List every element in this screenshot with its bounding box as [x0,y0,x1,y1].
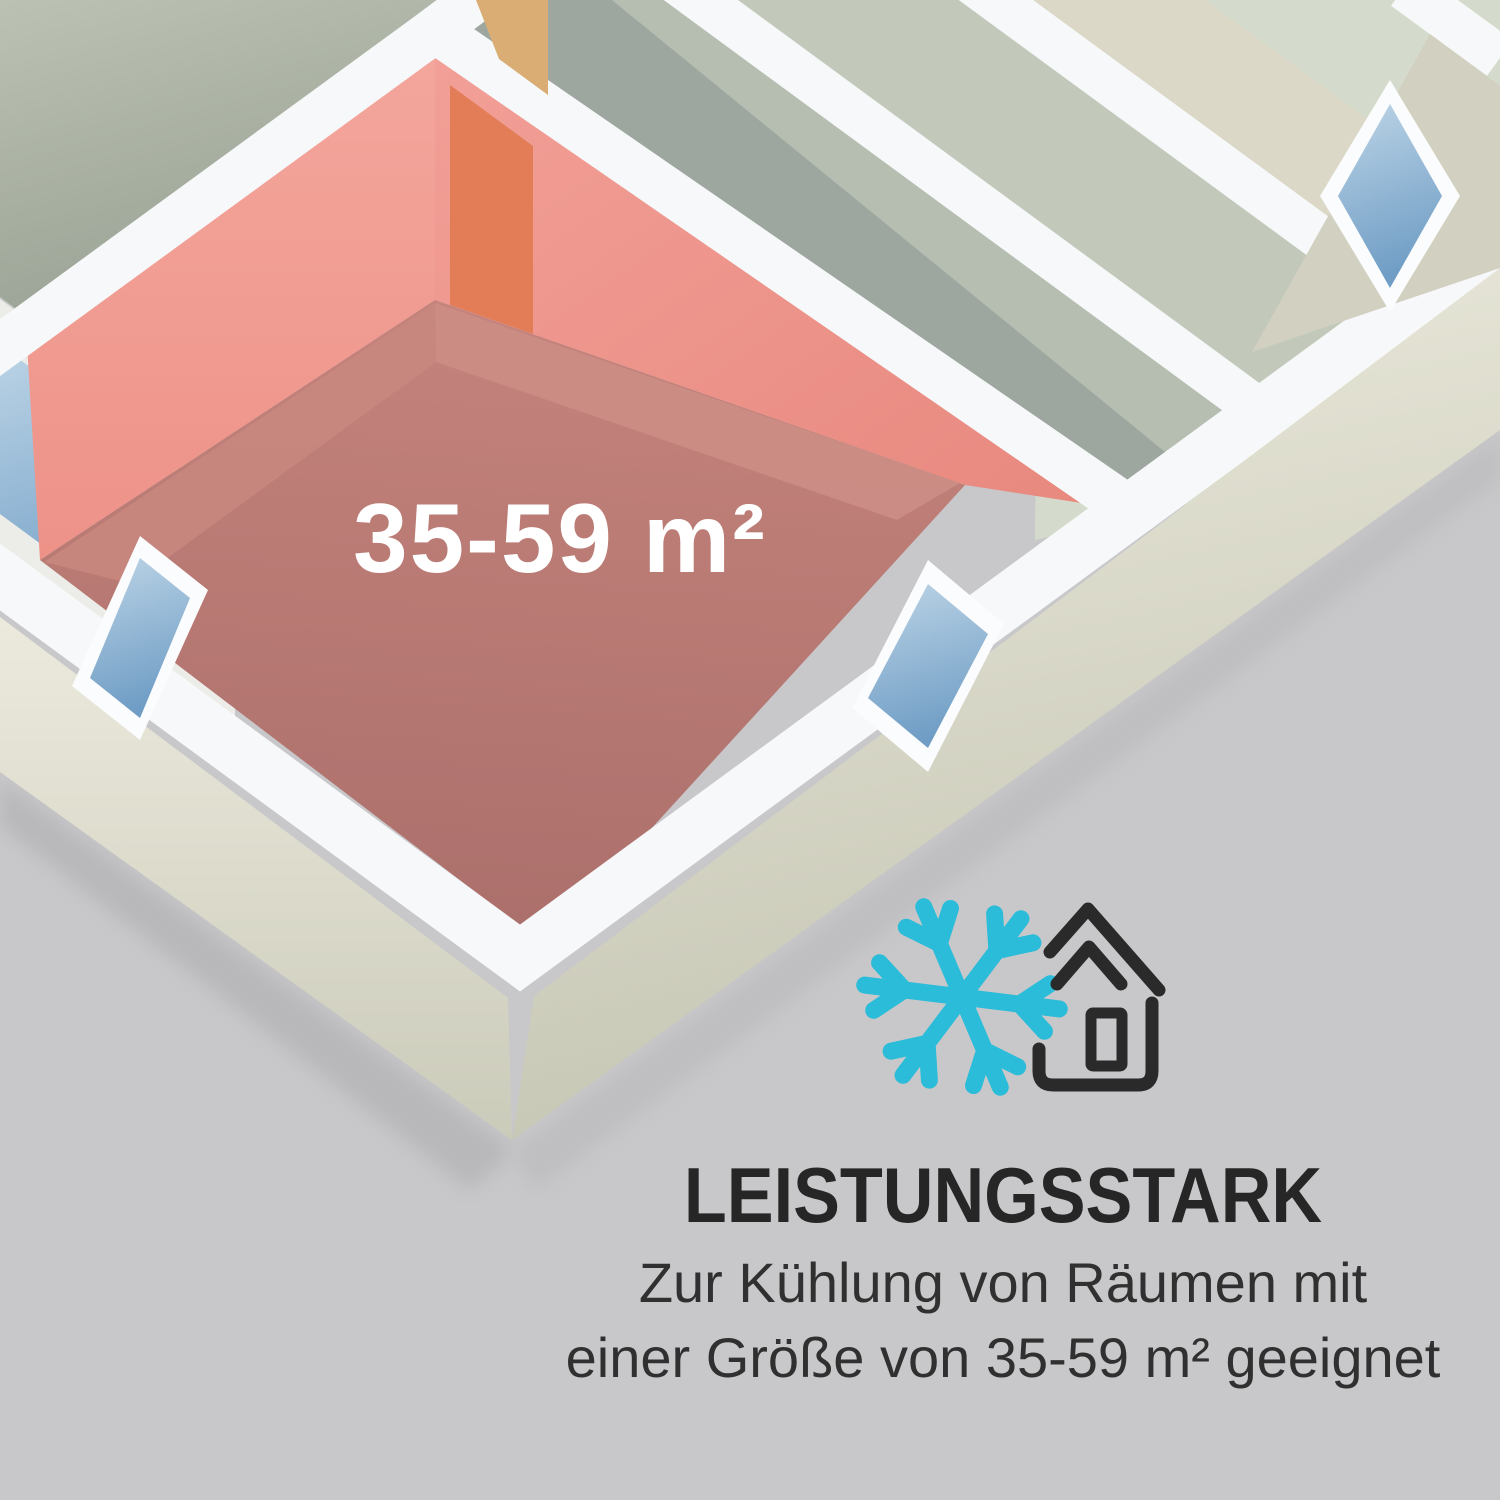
feature-heading: LEISTUNGSSTARK [684,1152,1322,1239]
feature-body-line1: Zur Kühlung von Räumen mit [639,1251,1368,1314]
feature-body-line2: einer Größe von 35-59 m² geeignet [566,1326,1441,1389]
room-size-label: 35-59 m² [353,483,767,593]
promo-graphic: 35-59 m² [0,0,1500,1500]
